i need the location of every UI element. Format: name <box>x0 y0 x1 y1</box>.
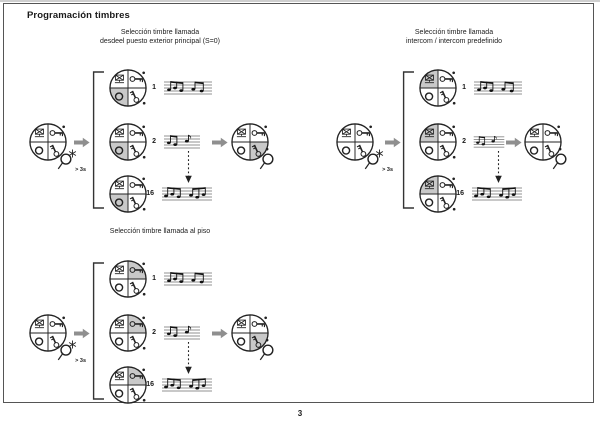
led-dot <box>143 347 146 350</box>
arrow-right-icon <box>74 328 90 339</box>
led-dot <box>142 316 145 319</box>
ringtone-number: 1 <box>140 84 156 91</box>
confirm-circle <box>231 123 269 161</box>
ringtone-number: 16 <box>448 190 464 197</box>
options-bracket <box>92 71 106 209</box>
led-dot <box>453 156 456 159</box>
star-icon <box>375 149 384 158</box>
led-dot <box>142 262 145 265</box>
led-dot <box>264 316 267 319</box>
handset-start-circle: > 3s <box>29 314 67 352</box>
music-notes-icon <box>162 324 202 342</box>
confirm-circle <box>231 314 269 352</box>
options-bracket <box>402 71 416 209</box>
music-notes-icon <box>470 185 524 203</box>
led-dot <box>453 102 456 105</box>
heading-line-1: Selección timbre llamada <box>318 28 590 37</box>
ringtone-number: 16 <box>138 190 154 197</box>
manual-page: Programación timbres Selección timbre ll… <box>0 0 600 434</box>
led-dot <box>453 208 456 211</box>
ringtone-number: 2 <box>450 138 466 145</box>
arrow-right-icon <box>212 137 228 148</box>
led-dot <box>369 125 372 128</box>
scan-edge <box>0 0 600 2</box>
section-exterior-call-ringtone: Selección timbre llamada desdeel puesto … <box>8 26 312 222</box>
led-dot <box>452 125 455 128</box>
led-dot <box>143 208 146 211</box>
options-bracket <box>92 262 106 400</box>
hold-duration-label: > 3s <box>75 167 86 173</box>
music-notes-icon <box>162 270 214 288</box>
led-dot <box>452 71 455 74</box>
led-dot <box>452 177 455 180</box>
section-heading: Selección timbre llamada desdeel puesto … <box>8 28 312 46</box>
ringtone-number: 1 <box>450 84 466 91</box>
led-dot <box>266 148 269 151</box>
arrow-right-icon <box>74 137 90 148</box>
finger-press-icon <box>258 343 275 362</box>
led-dot <box>143 399 146 402</box>
led-dot <box>62 316 65 319</box>
led-dot <box>142 368 145 371</box>
led-dot <box>557 125 560 128</box>
confirm-circle <box>524 123 562 161</box>
music-notes-icon <box>162 133 202 151</box>
music-notes-icon <box>472 133 506 151</box>
page-title: Programación timbres <box>27 10 130 21</box>
star-icon <box>68 149 77 158</box>
finger-press-icon <box>551 152 568 171</box>
led-dot <box>142 177 145 180</box>
led-dot <box>266 339 269 342</box>
dotted-arrow-down-icon <box>494 151 503 183</box>
section-floor-call-ringtone: Selección timbre llamada al piso > 3s 1 <box>8 217 312 413</box>
led-dot <box>143 156 146 159</box>
section-intercom-ringtone: Selección timbre llamada intercom / inte… <box>318 26 590 222</box>
music-notes-icon <box>162 79 214 97</box>
section-heading: Selección timbre llamada al piso <box>8 227 312 236</box>
led-dot <box>559 148 562 151</box>
arrow-right-icon <box>212 328 228 339</box>
hold-duration-label: > 3s <box>75 358 86 364</box>
led-dot <box>142 125 145 128</box>
hold-duration-label: > 3s <box>382 167 393 173</box>
music-notes-icon <box>160 376 214 394</box>
led-dot <box>143 293 146 296</box>
heading-line-1: Selección timbre llamada <box>8 28 312 37</box>
music-notes-icon <box>472 79 524 97</box>
page-number: 3 <box>0 409 600 418</box>
star-icon <box>68 340 77 349</box>
heading-line-1: Selección timbre llamada al piso <box>8 227 312 236</box>
ringtone-number: 16 <box>138 381 154 388</box>
led-dot <box>143 102 146 105</box>
heading-line-2: intercom / intercom predefinido <box>318 37 590 46</box>
dotted-arrow-down-icon <box>184 342 193 374</box>
finger-press-icon <box>258 152 275 171</box>
handset-start-circle: > 3s <box>29 123 67 161</box>
handset-start-circle: > 3s <box>336 123 374 161</box>
dotted-arrow-down-icon <box>184 151 193 183</box>
ringtone-number: 2 <box>140 138 156 145</box>
led-dot <box>142 71 145 74</box>
ringtone-number: 1 <box>140 275 156 282</box>
arrow-right-icon <box>385 137 401 148</box>
ringtone-number: 2 <box>140 329 156 336</box>
section-heading: Selección timbre llamada intercom / inte… <box>318 28 590 46</box>
heading-line-2: desdeel puesto exterior principal (S=0) <box>8 37 312 46</box>
led-dot <box>264 125 267 128</box>
music-notes-icon <box>160 185 214 203</box>
arrow-right-icon <box>506 137 522 148</box>
led-dot <box>62 125 65 128</box>
